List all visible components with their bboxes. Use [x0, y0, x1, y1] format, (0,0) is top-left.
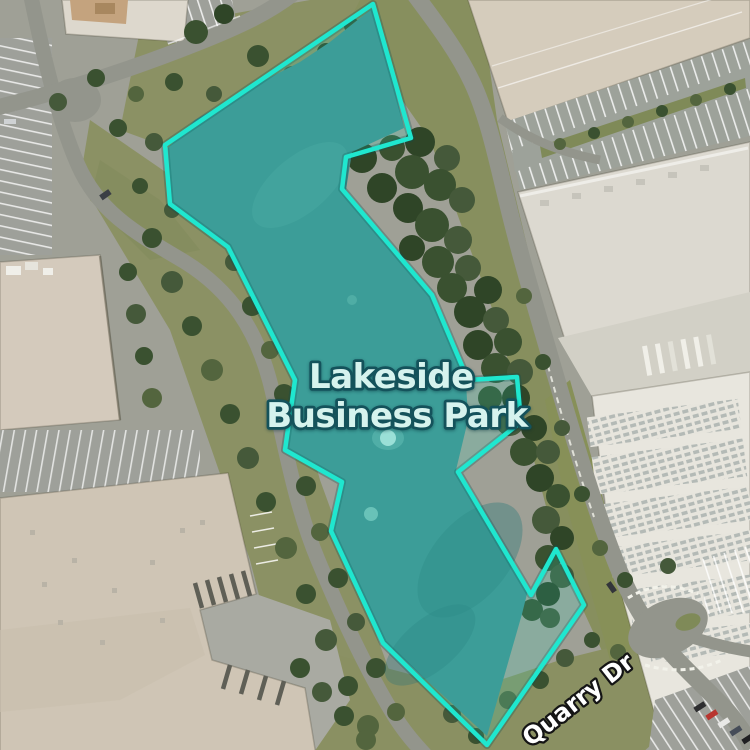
map-canvas[interactable]: Lakeside Business Park Quarry Dr — [0, 0, 750, 750]
aerial-imagery[interactable]: Lakeside Business Park Quarry Dr — [0, 0, 750, 750]
area-label-line2: Business Park — [266, 396, 529, 436]
area-label-line1: Lakeside — [309, 357, 474, 397]
